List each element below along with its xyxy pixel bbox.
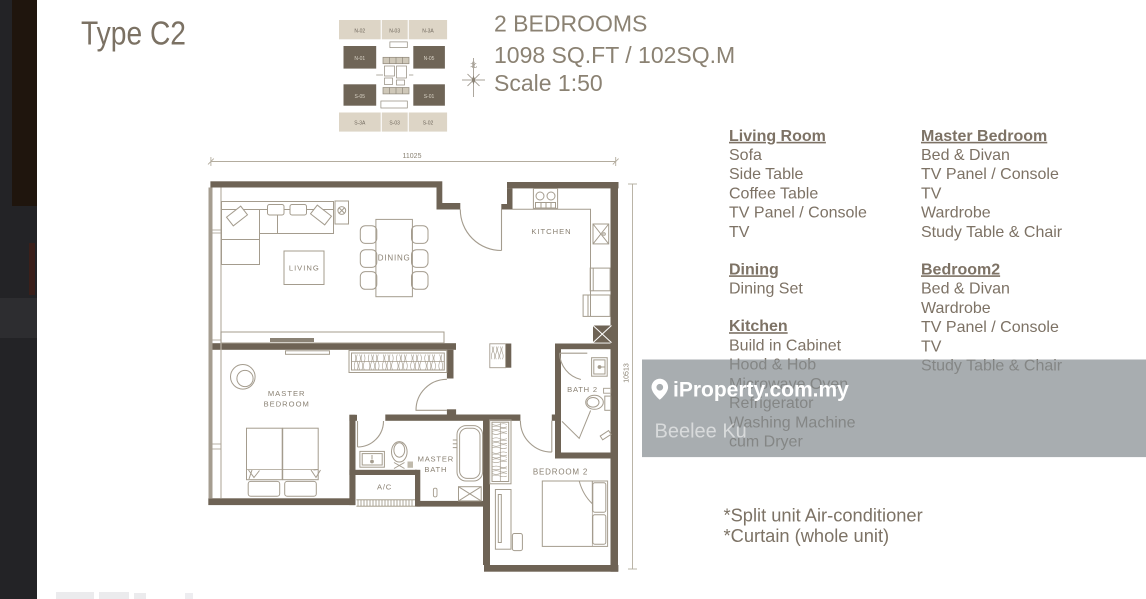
svg-text:MASTER: MASTER bbox=[268, 389, 306, 398]
svg-text:Bedroom2: Bedroom2 bbox=[921, 261, 1000, 278]
svg-text:Wardrobe: Wardrobe bbox=[921, 205, 991, 222]
svg-text:S-01: S-01 bbox=[424, 94, 435, 100]
svg-text:S-03: S-03 bbox=[389, 121, 400, 127]
svg-text:N-03: N-03 bbox=[389, 29, 400, 35]
svg-text:N-3A: N-3A bbox=[422, 29, 434, 35]
svg-text:*Split unit Air-conditioner: *Split unit Air-conditioner bbox=[724, 505, 923, 526]
svg-text:LIVING: LIVING bbox=[289, 264, 320, 273]
svg-text:Study Table & Chair: Study Table & Chair bbox=[921, 224, 1063, 241]
svg-text:Kitchen: Kitchen bbox=[729, 318, 788, 335]
svg-text:Type C2: Type C2 bbox=[81, 15, 186, 52]
svg-text:Dining: Dining bbox=[729, 261, 779, 278]
svg-text:N-02: N-02 bbox=[354, 29, 365, 35]
svg-text:TV: TV bbox=[729, 224, 750, 241]
svg-text:Living Room: Living Room bbox=[729, 128, 826, 145]
svg-text:Scale 1:50: Scale 1:50 bbox=[494, 70, 603, 96]
svg-text:TV: TV bbox=[921, 185, 942, 202]
svg-text:10513: 10513 bbox=[624, 363, 631, 383]
svg-text:Side Table: Side Table bbox=[729, 166, 804, 183]
svg-text:北: 北 bbox=[470, 61, 477, 69]
svg-text:A/C: A/C bbox=[377, 482, 392, 491]
svg-text:BATH: BATH bbox=[424, 465, 447, 474]
svg-text:2 BEDROOMS: 2 BEDROOMS bbox=[494, 11, 647, 37]
svg-text:Sofa: Sofa bbox=[729, 147, 762, 164]
svg-text:Bed & Divan: Bed & Divan bbox=[921, 147, 1010, 164]
svg-text:iProperty.com.my: iProperty.com.my bbox=[673, 379, 849, 402]
svg-text:S-3A: S-3A bbox=[354, 121, 366, 127]
svg-text:11025: 11025 bbox=[403, 153, 422, 160]
svg-text:MASTER: MASTER bbox=[418, 454, 454, 463]
svg-text:DINING: DINING bbox=[378, 254, 411, 263]
svg-text:Coffee Table: Coffee Table bbox=[729, 185, 818, 202]
svg-text:BATH 2: BATH 2 bbox=[567, 385, 598, 394]
svg-text:*Curtain (whole unit): *Curtain (whole unit) bbox=[724, 525, 890, 546]
svg-text:N-01: N-01 bbox=[354, 56, 365, 62]
svg-text:BEDROOM 2: BEDROOM 2 bbox=[533, 467, 588, 476]
svg-text:Beelee Ku: Beelee Ku bbox=[655, 421, 747, 443]
svg-text:TV Panel / Console: TV Panel / Console bbox=[921, 319, 1059, 336]
svg-text:TV Panel / Console: TV Panel / Console bbox=[729, 205, 867, 222]
svg-text:Dining Set: Dining Set bbox=[729, 281, 803, 298]
svg-text:Wardrobe: Wardrobe bbox=[921, 300, 991, 317]
svg-text:TV Panel / Console: TV Panel / Console bbox=[921, 166, 1059, 183]
svg-text:BEDROOM: BEDROOM bbox=[264, 399, 310, 408]
svg-text:KITCHEN: KITCHEN bbox=[531, 227, 571, 236]
svg-text:1098 SQ.FT / 102SQ.M: 1098 SQ.FT / 102SQ.M bbox=[494, 42, 735, 68]
svg-text:S-05: S-05 bbox=[355, 94, 366, 100]
svg-text:Master Bedroom: Master Bedroom bbox=[921, 128, 1047, 145]
svg-text:N-05: N-05 bbox=[424, 56, 435, 62]
svg-text:Bed & Divan: Bed & Divan bbox=[921, 281, 1010, 298]
svg-text:Build in Cabinet: Build in Cabinet bbox=[729, 337, 842, 354]
svg-text:TV: TV bbox=[921, 338, 942, 355]
svg-text:S-02: S-02 bbox=[423, 121, 434, 127]
